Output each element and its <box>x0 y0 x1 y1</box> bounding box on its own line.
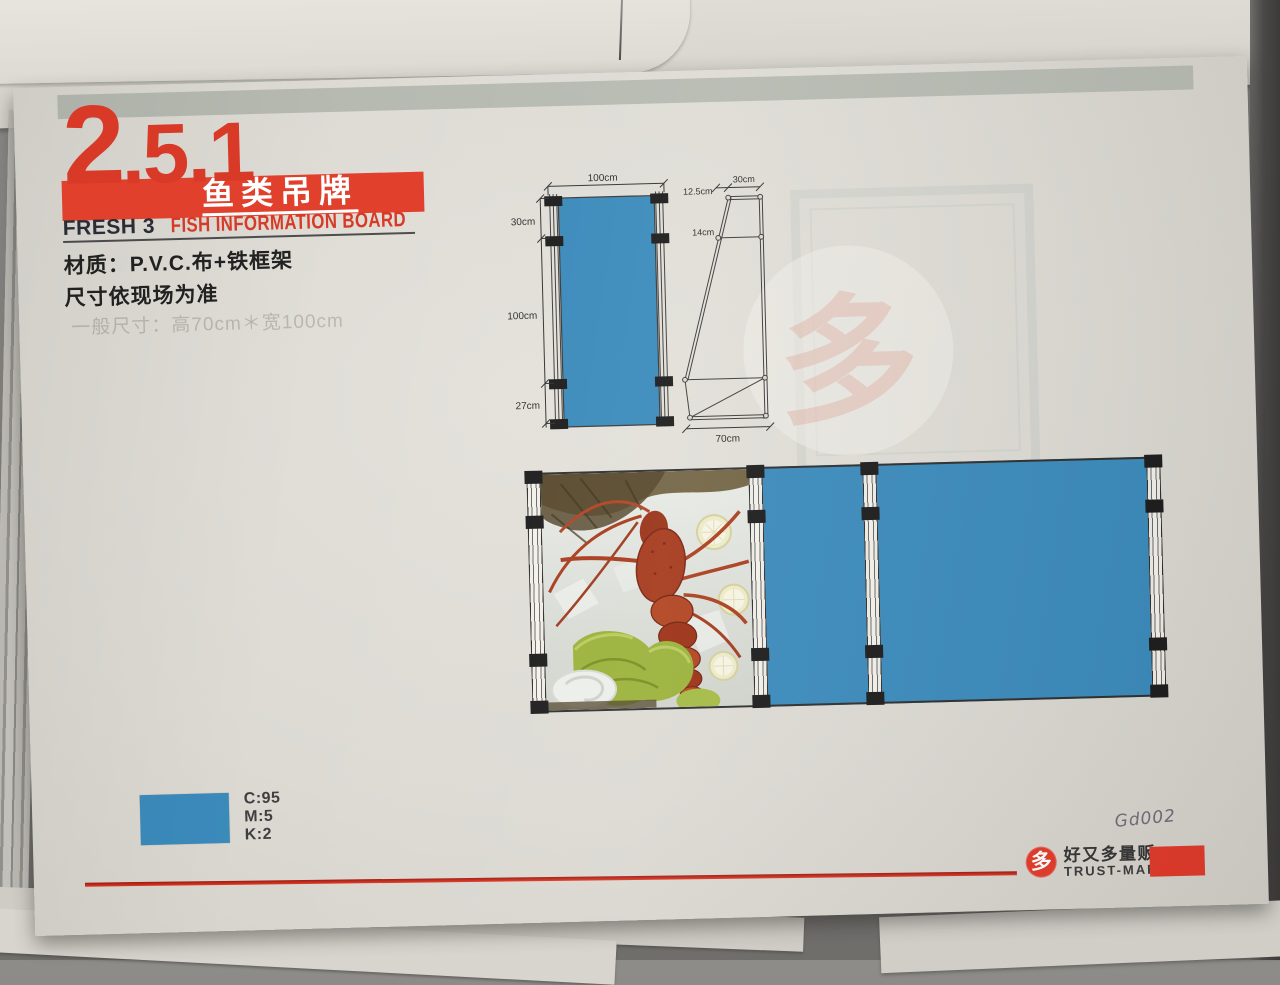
bleed-through-logo: 多 <box>790 184 1040 476</box>
trustmart-logo-icon: 多 <box>1025 846 1057 878</box>
front-view-seg-bottom-label: 27cm <box>515 401 540 413</box>
handwritten-code: Gd002 <box>1114 806 1177 832</box>
side-view-top-width-label: 30cm <box>733 174 755 185</box>
cmyk-c: C:95 <box>244 790 281 809</box>
blue-panel-small <box>762 464 868 707</box>
side-view-upper-label: 14cm <box>692 227 714 238</box>
material-spec: 材质：P.V.C.布+铁框架 <box>63 244 293 280</box>
cmyk-m: M:5 <box>244 808 281 827</box>
photo-scene: 2 .5.1 鱼类吊牌 FRESH 3 FISH INFORMATION BOA… <box>0 0 1280 960</box>
section-number: 2 .5.1 <box>61 96 254 191</box>
logo-red-box <box>1149 845 1205 876</box>
banner-mockup <box>526 456 1166 713</box>
front-view-seg-mid-label: 100cm <box>507 311 537 323</box>
front-view-top-width-label: 100cm <box>588 173 618 185</box>
ghost-logo-char: 多 <box>776 248 921 454</box>
blue-panel-large <box>876 457 1152 704</box>
section-number-rest: .5.1 <box>120 118 254 189</box>
lobster-photo-panel <box>540 467 754 712</box>
logo-char: 多 <box>1030 851 1052 873</box>
side-view-offset-label: 12.5cm <box>683 186 713 197</box>
footer-rule <box>85 871 1017 886</box>
spec-page: 2 .5.1 鱼类吊牌 FRESH 3 FISH INFORMATION BOA… <box>13 56 1269 936</box>
front-view-seg-top-label: 30cm <box>511 217 536 229</box>
size-note: 尺寸依现场为准 <box>64 278 219 312</box>
faded-size-note: 一般尺寸：高70cm＊宽100cm <box>71 306 344 340</box>
subtitle-left: FRESH 3 <box>62 215 155 241</box>
front-view-banner-face <box>558 196 660 427</box>
cmyk-k: K:2 <box>245 826 282 845</box>
side-view-bottom-width-label: 70cm <box>715 433 740 445</box>
section-number-major: 2 <box>61 100 122 191</box>
side-view-drawing: 30cm 12.5cm 14cm 70cm <box>670 164 798 457</box>
background-sheet <box>0 0 691 84</box>
front-view-drawing: 100cm 30cm 100cm 27cm <box>495 167 682 452</box>
cmyk-values: C:95 M:5 K:2 <box>244 790 282 845</box>
lobster-photo <box>540 469 754 710</box>
color-swatch <box>140 793 230 845</box>
